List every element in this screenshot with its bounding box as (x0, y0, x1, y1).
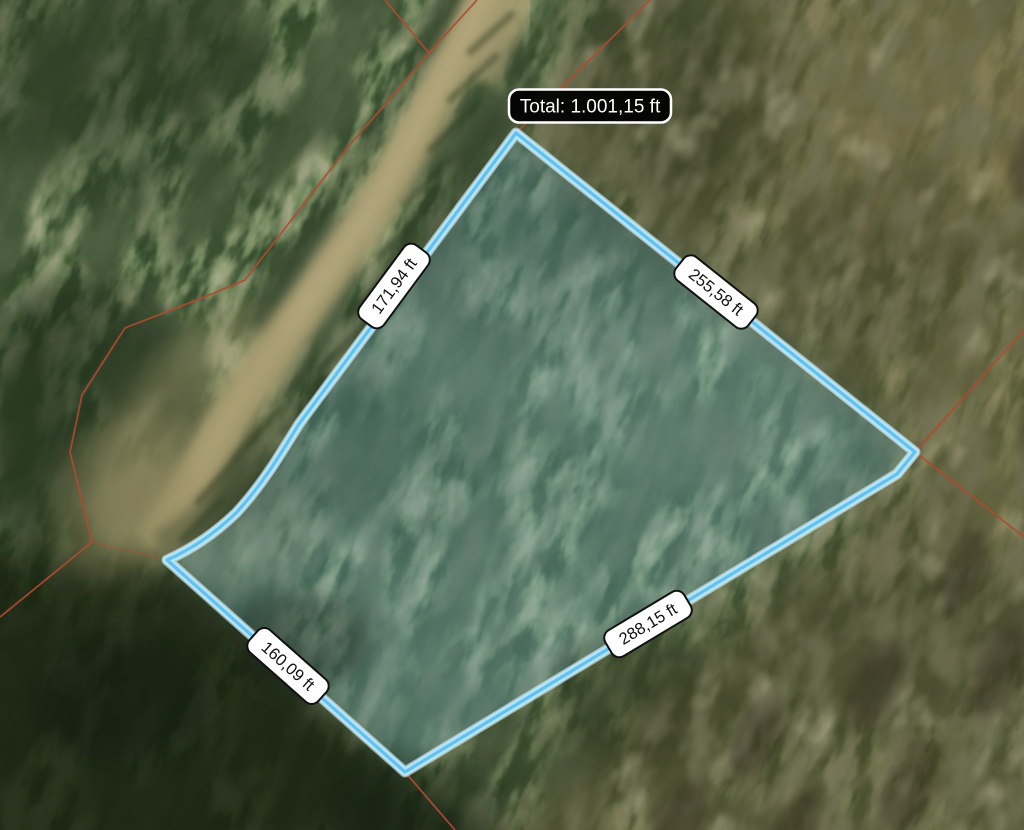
svg-text:Total: 1.001,15 ft: Total: 1.001,15 ft (520, 97, 661, 118)
